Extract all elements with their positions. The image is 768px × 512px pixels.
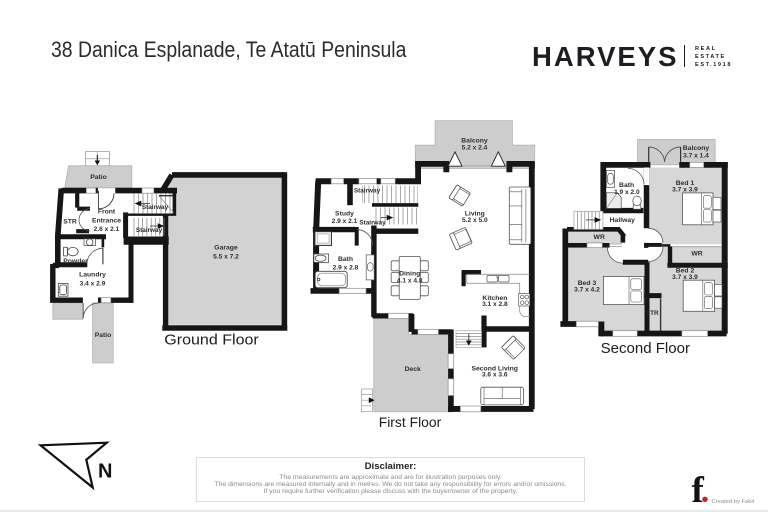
svg-text:Patio: Patio	[90, 174, 107, 181]
svg-text:3.4 x 2.9: 3.4 x 2.9	[80, 281, 106, 288]
svg-text:Deck: Deck	[405, 366, 421, 373]
svg-text:1.9 x 2.0: 1.9 x 2.0	[614, 189, 640, 196]
svg-text:STR: STR	[63, 218, 77, 225]
svg-text:3.7 x 4.2: 3.7 x 4.2	[574, 286, 600, 293]
svg-text:3.7 x 1.4: 3.7 x 1.4	[683, 153, 709, 160]
svg-text:Bath: Bath	[338, 256, 353, 263]
svg-text:Laundry: Laundry	[79, 272, 106, 279]
svg-text:Stairway: Stairway	[359, 220, 386, 227]
svg-text:Stairway: Stairway	[142, 204, 169, 211]
svg-text:2.9 x 2.8: 2.9 x 2.8	[333, 265, 359, 272]
svg-text:5.2 x 2.4: 5.2 x 2.4	[462, 145, 488, 152]
svg-text:Study: Study	[335, 211, 354, 218]
svg-text:Created by Fabit: Created by Fabit	[712, 499, 755, 505]
svg-text:Patio: Patio	[95, 332, 112, 339]
svg-text:3.7 x 3.9: 3.7 x 3.9	[672, 187, 698, 194]
svg-text:First Floor: First Floor	[379, 414, 442, 430]
svg-text:2.9 x 2.1: 2.9 x 2.1	[332, 218, 358, 225]
svg-text:5.2 x 5.0: 5.2 x 5.0	[462, 217, 488, 224]
svg-text:STR: STR	[646, 310, 659, 317]
svg-text:3.1 x 2.8: 3.1 x 2.8	[482, 301, 508, 308]
svg-text:2.6 x 2.1: 2.6 x 2.1	[94, 226, 120, 233]
svg-text:3.7 x 3.9: 3.7 x 3.9	[672, 274, 698, 281]
svg-text:Stairway: Stairway	[354, 187, 381, 194]
svg-text:Balcony: Balcony	[461, 137, 488, 144]
svg-text:Powder: Powder	[63, 258, 88, 265]
svg-text:4.1 x 4.8: 4.1 x 4.8	[397, 278, 423, 285]
svg-text:f: f	[692, 470, 705, 511]
svg-text:Garage: Garage	[214, 245, 238, 252]
svg-text:Front: Front	[98, 209, 116, 216]
svg-text:N: N	[98, 461, 112, 483]
svg-text:WR: WR	[594, 234, 605, 241]
svg-text:Bath: Bath	[619, 182, 634, 189]
svg-text:3.6 x 3.6: 3.6 x 3.6	[482, 371, 508, 378]
svg-text:Balcony: Balcony	[683, 145, 710, 152]
svg-text:Entrance: Entrance	[92, 217, 121, 224]
svg-text:Second Floor: Second Floor	[601, 341, 691, 357]
svg-text:5.5 x 7.2: 5.5 x 7.2	[213, 254, 239, 261]
svg-text:WR: WR	[691, 250, 702, 257]
svg-text:Hallway: Hallway	[610, 217, 636, 224]
svg-text:Dining: Dining	[399, 271, 420, 278]
svg-text:Stairway: Stairway	[136, 227, 163, 234]
svg-text:Ground Floor: Ground Floor	[164, 333, 259, 349]
